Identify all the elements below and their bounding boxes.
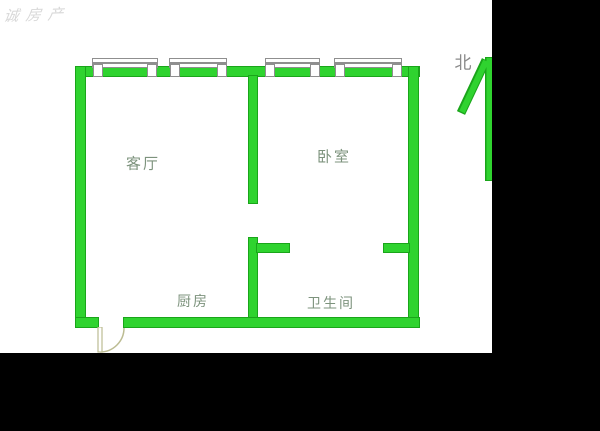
window-jamb: [217, 64, 227, 77]
watermark-text: 诚房产: [2, 3, 71, 26]
wall-bottom-main: [123, 317, 420, 328]
room-label-bathroom: 卫生间: [307, 293, 355, 313]
room-label-bedroom: 卧室: [317, 146, 351, 167]
room-label-kitchen: 厨房: [177, 291, 209, 311]
wall-bathroom-stub-right: [383, 243, 410, 253]
window-jamb: [392, 64, 402, 77]
mask-bottom: [0, 353, 600, 431]
window-jamb: [170, 64, 180, 77]
wall-right: [408, 66, 419, 328]
window-jamb: [310, 64, 320, 77]
window-jamb: [335, 64, 345, 77]
wall-left: [75, 66, 86, 328]
window-jamb: [147, 64, 157, 77]
window-jamb: [93, 64, 103, 77]
window-jamb: [265, 64, 275, 77]
wall-bathroom-stub-left: [256, 243, 290, 253]
room-label-living-room: 客厅: [126, 153, 160, 174]
floor-plan-canvas: 诚房产 客厅 卧室 厨房 卫生间 北: [0, 0, 600, 431]
wall-divider-upper: [248, 75, 258, 204]
